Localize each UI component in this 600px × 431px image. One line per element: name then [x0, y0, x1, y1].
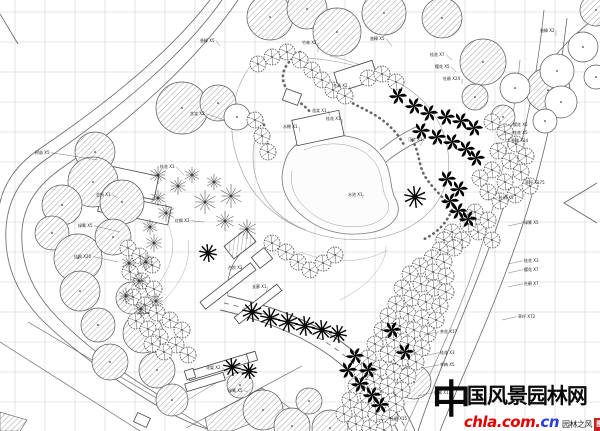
svg-text:长廊 X1: 长廊 X1: [252, 283, 267, 289]
svg-text:樱花 X7: 樱花 X7: [524, 266, 539, 272]
svg-text:草坪 X175: 草坪 X175: [525, 179, 545, 185]
svg-text:花架 X2: 花架 X2: [206, 364, 221, 370]
svg-text:桂花 X3: 桂花 X3: [440, 349, 455, 355]
cad-canvas: 树苗 X5绿篱 X5红枫 X20会所 X1含笑 X2桂花 X3红枫 X3香樟 X…: [0, 0, 600, 431]
svg-text:茶花 X17: 茶花 X17: [440, 328, 458, 334]
svg-text:红枫 X20: 红枫 X20: [74, 253, 92, 259]
pond-layer: [282, 135, 398, 234]
svg-text:绿篱 X5: 绿篱 X5: [228, 387, 243, 393]
svg-text:垂柳 X14: 垂柳 X14: [511, 137, 529, 143]
svg-text:会所 X1: 会所 X1: [96, 191, 111, 197]
svg-text:绿篱 X5: 绿篱 X5: [524, 219, 539, 225]
svg-text:草坪 X72: 草坪 X72: [518, 313, 536, 319]
svg-text:桂花 X5: 桂花 X5: [513, 129, 528, 135]
svg-text:香樟 X5: 香樟 X5: [370, 35, 385, 41]
svg-text:杜鹃 X5: 杜鹃 X5: [499, 194, 514, 200]
svg-text:香樟 X2: 香樟 X2: [540, 27, 555, 33]
site-plan-drawing: 树苗 X5绿篱 X5红枫 X20会所 X1含笑 X2桂花 X3红枫 X3香樟 X…: [0, 0, 600, 431]
svg-text:杜鹃 X7: 杜鹃 X7: [524, 280, 539, 286]
svg-text:树苗 X5: 树苗 X5: [35, 149, 50, 155]
svg-text:桂花 X1: 桂花 X1: [326, 115, 341, 121]
svg-text:绿篱 X5: 绿篱 X5: [78, 222, 93, 228]
svg-text:桂花 X3: 桂花 X3: [160, 163, 175, 169]
svg-text:冬青 X2: 冬青 X2: [333, 82, 348, 88]
svg-text:桂花 X3: 桂花 X3: [524, 257, 539, 263]
svg-text:杜鹃 X15: 杜鹃 X15: [390, 415, 408, 421]
svg-text:水榭 X1: 水榭 X1: [283, 123, 298, 129]
svg-text:香樟 X5: 香樟 X5: [200, 37, 215, 43]
svg-text:樱花 X5: 樱花 X5: [513, 121, 528, 127]
svg-text:桂花 X7: 桂花 X7: [430, 51, 445, 57]
svg-text:茶梅 X5: 茶梅 X5: [440, 361, 455, 367]
svg-text:台阶 X2: 台阶 X2: [228, 264, 243, 270]
svg-text:红枫 X3: 红枫 X3: [175, 217, 190, 223]
svg-text:绿篱 X13: 绿篱 X13: [434, 389, 452, 395]
svg-text:杜鹃 X24: 杜鹃 X24: [443, 75, 461, 81]
svg-text:樱花 X5: 樱花 X5: [435, 63, 450, 69]
svg-text:竹林 X2: 竹林 X2: [302, 39, 317, 45]
svg-text:水池 X1: 水池 X1: [348, 191, 363, 197]
svg-text:含笑 X1: 含笑 X1: [312, 107, 327, 113]
svg-text:汀步 X1: 汀步 X1: [408, 136, 423, 142]
svg-text:含笑 X2: 含笑 X2: [190, 110, 205, 116]
